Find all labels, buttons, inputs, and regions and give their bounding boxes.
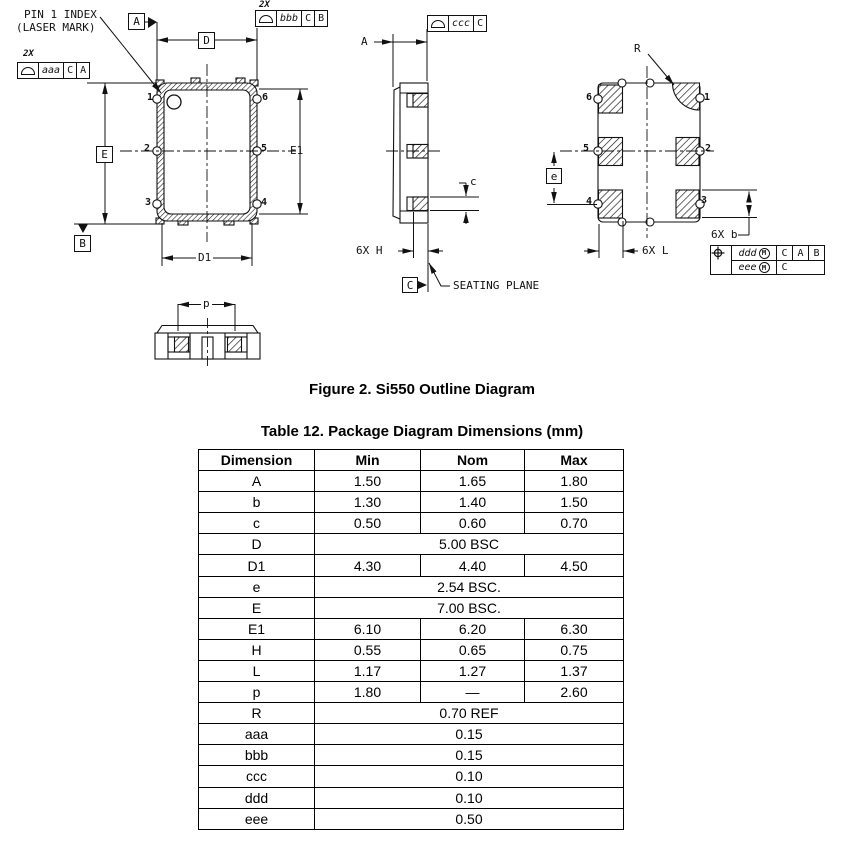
mmc-modifier-icon: M	[759, 262, 770, 273]
datum-c-flag: C	[402, 277, 418, 293]
table-title: Table 12. Package Diagram Dimensions (mm…	[0, 423, 844, 440]
table-row: bbb0.15	[199, 745, 624, 766]
count-L-label: 6X L	[642, 245, 669, 257]
side-lid	[393, 87, 400, 219]
fcf-ddd-ref2: A	[792, 246, 808, 260]
pin1-note-line2: (LASER MARK)	[16, 22, 95, 34]
fcf-ddd-ref1: C	[776, 246, 792, 260]
table-header-row: Dimension Min Nom Max	[199, 450, 624, 471]
fcf-eee-ref1: C	[776, 261, 792, 274]
dim-E-label: E	[96, 146, 113, 163]
table-row: e2.54 BSC.	[199, 576, 624, 597]
fcf-eee-tol: eeeM	[732, 261, 776, 274]
position-symbol-icon	[711, 246, 731, 274]
dim-e-label: e	[546, 168, 562, 184]
count-b-label: 6X b	[711, 229, 738, 241]
fcf-bbb: bbb C B	[255, 10, 328, 27]
fcf-ccc: ccc C	[427, 15, 487, 32]
front-pin-4: 4	[261, 198, 267, 208]
table-row: H0.550.650.75	[199, 639, 624, 660]
col-header-nom: Nom	[421, 450, 525, 471]
dim-c-label: c	[470, 176, 477, 188]
front-pin-3: 3	[145, 198, 151, 208]
fcf-aaa-tol: aaa	[38, 63, 63, 78]
datum-a-flag: A	[128, 13, 145, 30]
table-row: L1.171.271.37	[199, 660, 624, 681]
dim-D-label: D	[198, 32, 215, 49]
table-row: ccc0.10	[199, 766, 624, 787]
table-row: D5.00 BSC	[199, 534, 624, 555]
back-pin-1: 1	[704, 93, 710, 103]
fcf-bbb-ref2: B	[314, 11, 327, 26]
fcf-bbb-tol: bbb	[276, 11, 301, 26]
fcf-ccc-tol: ccc	[448, 16, 473, 31]
back-pin-3: 3	[701, 196, 707, 206]
dim-A-label: A	[361, 36, 368, 48]
fcf-aaa: aaa C A	[17, 62, 90, 79]
count-H-label: 6X H	[356, 245, 383, 257]
back-pin-6: 6	[586, 93, 592, 103]
table-row: E7.00 BSC.	[199, 597, 624, 618]
col-header-dimension: Dimension	[199, 450, 315, 471]
front-pin-5: 5	[261, 144, 267, 154]
fcf-ddd-ref3: B	[808, 246, 824, 260]
fcf-ddd-tol: dddM	[732, 246, 776, 260]
outline-diagram: PIN 1 INDEX (LASER MARK) 2X aaa C A A D …	[0, 0, 844, 372]
datasheet-page: PIN 1 INDEX (LASER MARK) 2X aaa C A A D …	[0, 0, 844, 862]
table-row: A1.501.651.80	[199, 471, 624, 492]
pin1-note-line1: PIN 1 INDEX	[24, 9, 97, 21]
profile-surface-icon	[259, 15, 273, 23]
fcf-bbb-ref1: C	[301, 11, 314, 26]
table-row: c0.500.600.70	[199, 513, 624, 534]
profile-surface-icon	[21, 67, 35, 75]
fcf-position: dddM C A B eeeM C	[710, 245, 825, 275]
table-row: D14.304.404.50	[199, 555, 624, 576]
table-row: aaa0.15	[199, 724, 624, 745]
dim-R-label: R	[634, 43, 641, 55]
datum-b-flag: B	[74, 235, 91, 252]
fcf-aaa-ref1: C	[63, 63, 76, 78]
package-dimensions-table: Dimension Min Nom Max A1.501.651.80 b1.3…	[198, 449, 624, 830]
col-header-max: Max	[525, 450, 624, 471]
front-pin-2: 2	[144, 144, 150, 154]
seating-plane-label: SEATING PLANE	[453, 280, 539, 292]
table-row: E16.106.206.30	[199, 618, 624, 639]
side-view	[386, 83, 440, 223]
pin1-index-mark	[167, 95, 181, 109]
front-pin-1: 1	[147, 93, 153, 103]
back-pin-2: 2	[705, 144, 711, 154]
fcf-bbb-qty: 2X	[259, 1, 270, 10]
table-row: p1.80—2.60	[199, 682, 624, 703]
bottom-view	[155, 318, 260, 367]
dim-E1-label: E1	[290, 145, 303, 157]
table-row: b1.301.401.50	[199, 492, 624, 513]
table-row: eee0.50	[199, 808, 624, 829]
fcf-ccc-ref1: C	[473, 16, 486, 31]
back-pin-5: 5	[583, 144, 589, 154]
fcf-aaa-qty: 2X	[23, 50, 34, 59]
profile-surface-icon	[431, 20, 445, 28]
dim-D1-label: D1	[196, 252, 213, 264]
fcf-aaa-ref2: A	[76, 63, 89, 78]
table-row: ddd0.10	[199, 787, 624, 808]
col-header-min: Min	[315, 450, 421, 471]
outline-linework	[0, 0, 844, 372]
dim-p-label: p	[201, 298, 212, 310]
mmc-modifier-icon: M	[759, 248, 770, 259]
table-row: R0.70 REF	[199, 703, 624, 724]
back-pin-4: 4	[586, 197, 592, 207]
front-pin-6: 6	[262, 93, 268, 103]
figure-caption: Figure 2. Si550 Outline Diagram	[0, 381, 844, 398]
